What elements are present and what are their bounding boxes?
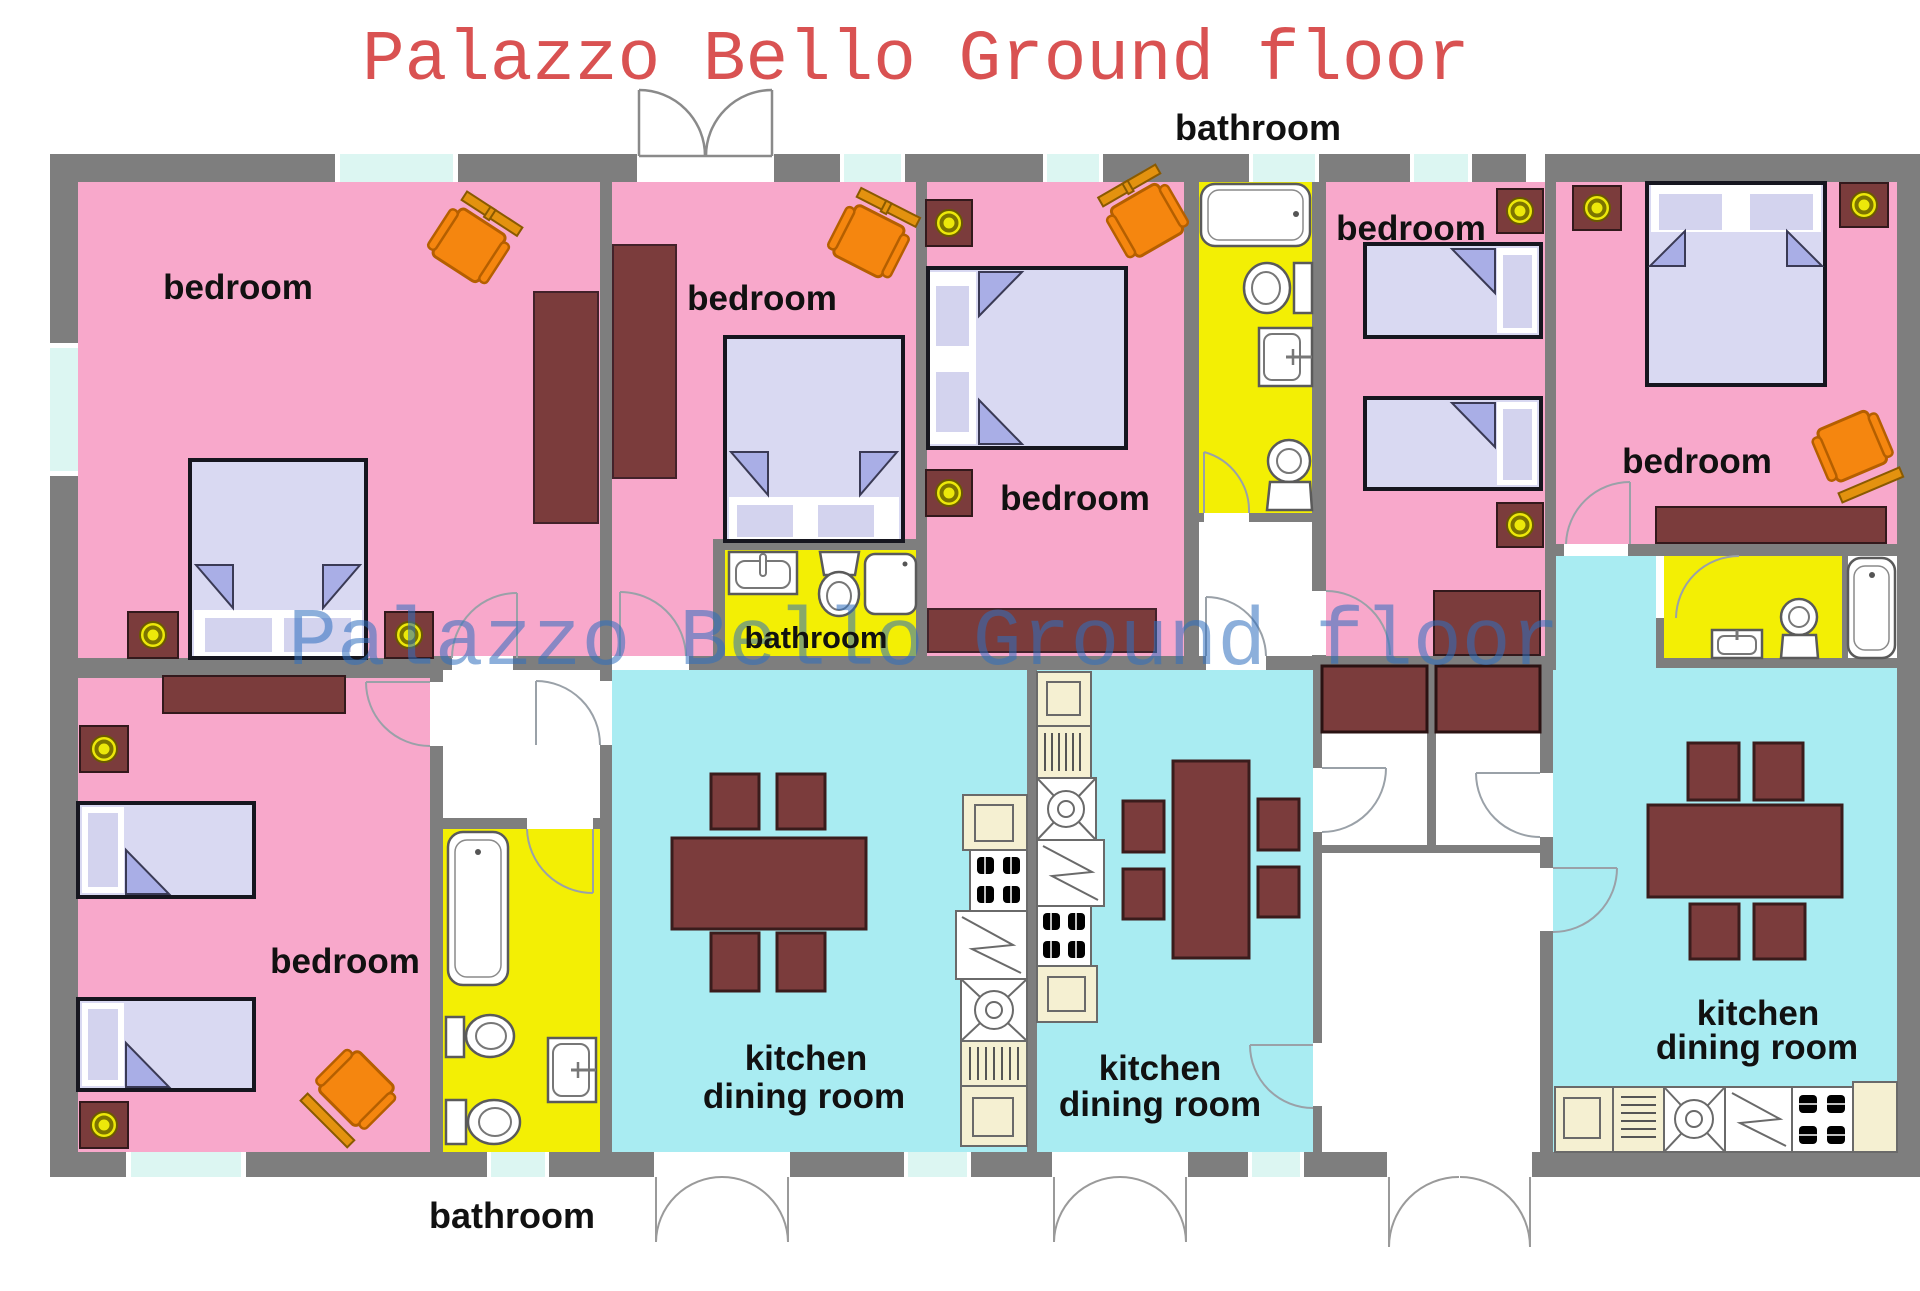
svg-text:Palazzo Bello Ground floor: Palazzo Bello Ground floor: [362, 21, 1470, 101]
svg-text:kitchen: kitchen: [745, 1039, 868, 1078]
svg-text:bedroom: bedroom: [1622, 442, 1772, 481]
svg-text:bathroom: bathroom: [1175, 107, 1341, 148]
svg-text:dining room: dining room: [1656, 1028, 1858, 1067]
svg-text:bedroom: bedroom: [163, 268, 313, 307]
svg-text:dining room: dining room: [1059, 1085, 1261, 1124]
svg-text:kitchen: kitchen: [1099, 1049, 1222, 1088]
svg-text:bedroom: bedroom: [1336, 209, 1486, 248]
svg-text:dining room: dining room: [703, 1077, 905, 1116]
svg-text:Palazzo Bello Ground floor: Palazzo Bello Ground floor: [288, 597, 1560, 689]
svg-text:bathroom: bathroom: [745, 620, 888, 655]
svg-text:bathroom: bathroom: [429, 1195, 595, 1236]
svg-text:bedroom: bedroom: [1000, 479, 1150, 518]
svg-text:bedroom: bedroom: [270, 942, 420, 981]
svg-text:bedroom: bedroom: [687, 279, 837, 318]
